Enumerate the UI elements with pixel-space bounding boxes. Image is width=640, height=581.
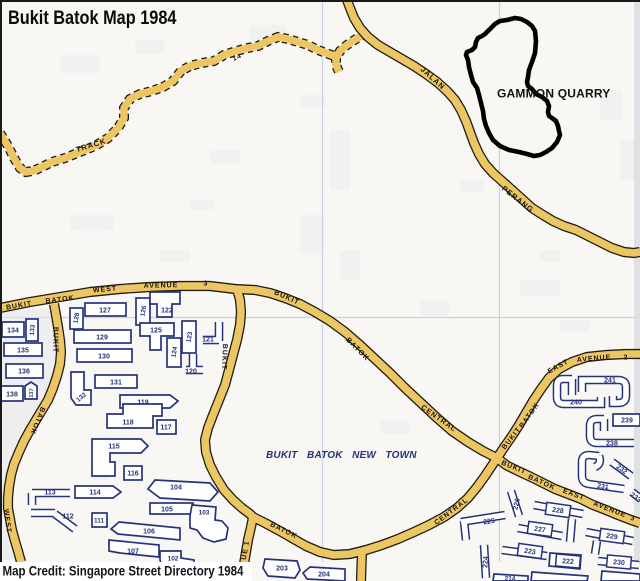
svg-text:118: 118: [122, 420, 133, 427]
svg-text:230: 230: [613, 559, 625, 567]
svg-text:104: 104: [170, 485, 182, 492]
svg-text:114: 114: [89, 490, 100, 497]
svg-text:130: 130: [98, 354, 110, 361]
svg-text:AVENUE: AVENUE: [144, 282, 179, 290]
svg-text:115: 115: [108, 444, 119, 451]
svg-text:136: 136: [18, 369, 30, 376]
svg-text:239: 239: [621, 418, 633, 425]
svg-text:116: 116: [127, 471, 138, 478]
svg-text:GAMMON QUARRY: GAMMON QUARRY: [497, 87, 610, 101]
svg-text:127: 127: [99, 308, 111, 315]
svg-text:3: 3: [204, 281, 209, 288]
svg-text:102: 102: [168, 555, 179, 562]
svg-text:138: 138: [6, 392, 18, 399]
svg-text:122: 122: [161, 308, 173, 315]
svg-text:224: 224: [482, 556, 490, 568]
svg-text:117: 117: [160, 425, 171, 432]
svg-text:125: 125: [150, 328, 162, 335]
svg-text:103: 103: [199, 509, 210, 516]
svg-text:BUKIT BATOK NEW TOWN: BUKIT BATOK NEW TOWN: [266, 450, 417, 461]
svg-text:111: 111: [94, 517, 105, 524]
svg-text:BUKIT: BUKIT: [220, 344, 228, 371]
svg-text:Bukit Batok Map 1984: Bukit Batok Map 1984: [8, 7, 177, 29]
svg-text:137: 137: [29, 388, 36, 398]
svg-text:134: 134: [7, 328, 19, 335]
svg-text:241: 241: [604, 378, 616, 385]
svg-text:214: 214: [505, 575, 516, 581]
svg-text:135: 135: [17, 348, 29, 355]
svg-text:203: 203: [276, 566, 288, 573]
svg-text:129: 129: [96, 335, 108, 342]
svg-text:113: 113: [44, 490, 55, 497]
svg-text:238: 238: [606, 441, 618, 448]
svg-text:222: 222: [562, 558, 574, 566]
svg-text:107: 107: [127, 549, 139, 556]
svg-text:204: 204: [318, 572, 330, 579]
svg-text:112: 112: [62, 514, 73, 521]
svg-text:105: 105: [161, 507, 173, 514]
svg-text:121: 121: [202, 337, 214, 344]
svg-text:131: 131: [110, 380, 122, 387]
svg-text:240: 240: [570, 400, 582, 407]
svg-text:106: 106: [143, 529, 155, 536]
svg-text:120: 120: [185, 369, 197, 376]
svg-text:BUKIT: BUKIT: [52, 327, 59, 353]
svg-text:Map Credit: Singapore Street D: Map Credit: Singapore Street Directory 1…: [3, 564, 244, 579]
svg-text:119: 119: [137, 400, 148, 407]
svg-text:133: 133: [29, 324, 37, 336]
svg-text:2: 2: [624, 355, 629, 362]
